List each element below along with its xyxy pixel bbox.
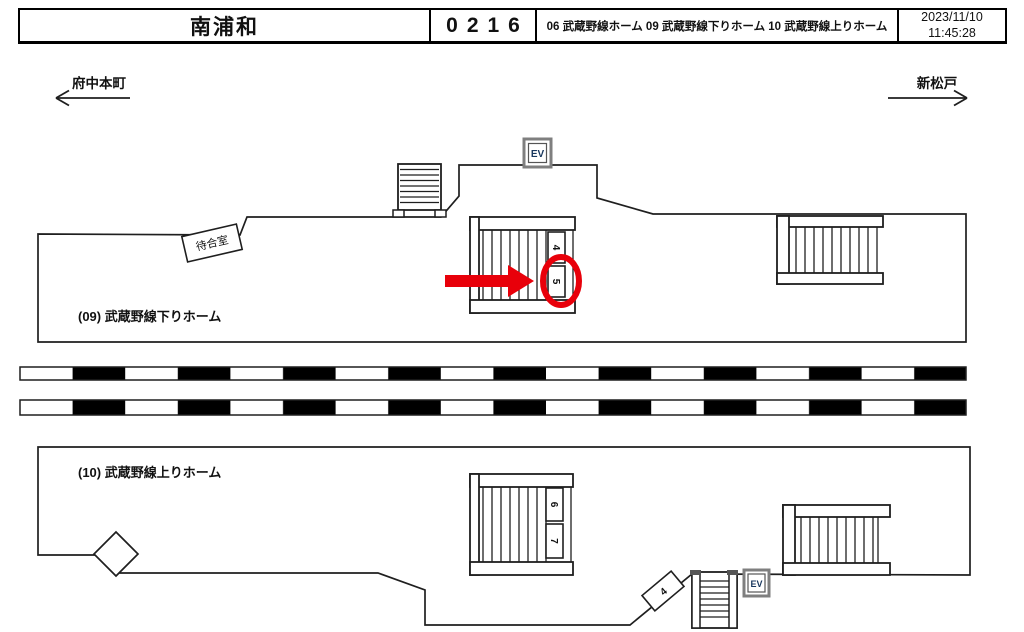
- station-map-screen: 南浦和 0216 06 武蔵野線ホーム 09 武蔵野線下りホーム 10 武蔵野線…: [0, 0, 1024, 632]
- arrow-right-icon: [888, 91, 967, 106]
- position-marker-4-label: 4: [550, 245, 561, 251]
- direction-left: 府中本町: [56, 75, 130, 106]
- elevator-bottom: EV: [744, 570, 769, 596]
- track-lower: [20, 400, 966, 415]
- elevator-top: EV: [524, 139, 551, 167]
- position-marker-7: 7: [546, 524, 563, 558]
- elevator-top-label: EV: [531, 149, 545, 160]
- direction-left-label: 府中本町: [72, 75, 126, 91]
- position-marker-7-label: 7: [548, 538, 559, 544]
- elevator-bottom-label: EV: [750, 579, 762, 589]
- position-marker-6-label: 6: [548, 502, 559, 508]
- arrow-left-icon: [56, 91, 130, 106]
- track-upper: [20, 367, 966, 380]
- stairs-icon: [393, 164, 446, 217]
- platform-up-label: (10) 武蔵野線上りホーム: [78, 465, 221, 480]
- station-diagram: 府中本町 新松戸: [0, 0, 1024, 632]
- direction-right-label: 新松戸: [917, 75, 958, 91]
- direction-right: 新松戸: [888, 75, 967, 106]
- position-marker-6: 6: [546, 488, 563, 521]
- platform-down-label: (09) 武蔵野線下りホーム: [78, 309, 221, 324]
- position-marker-5-label: 5: [550, 279, 561, 285]
- position-marker-5: 5: [548, 266, 565, 297]
- stairs-bottom-icon: [690, 570, 738, 628]
